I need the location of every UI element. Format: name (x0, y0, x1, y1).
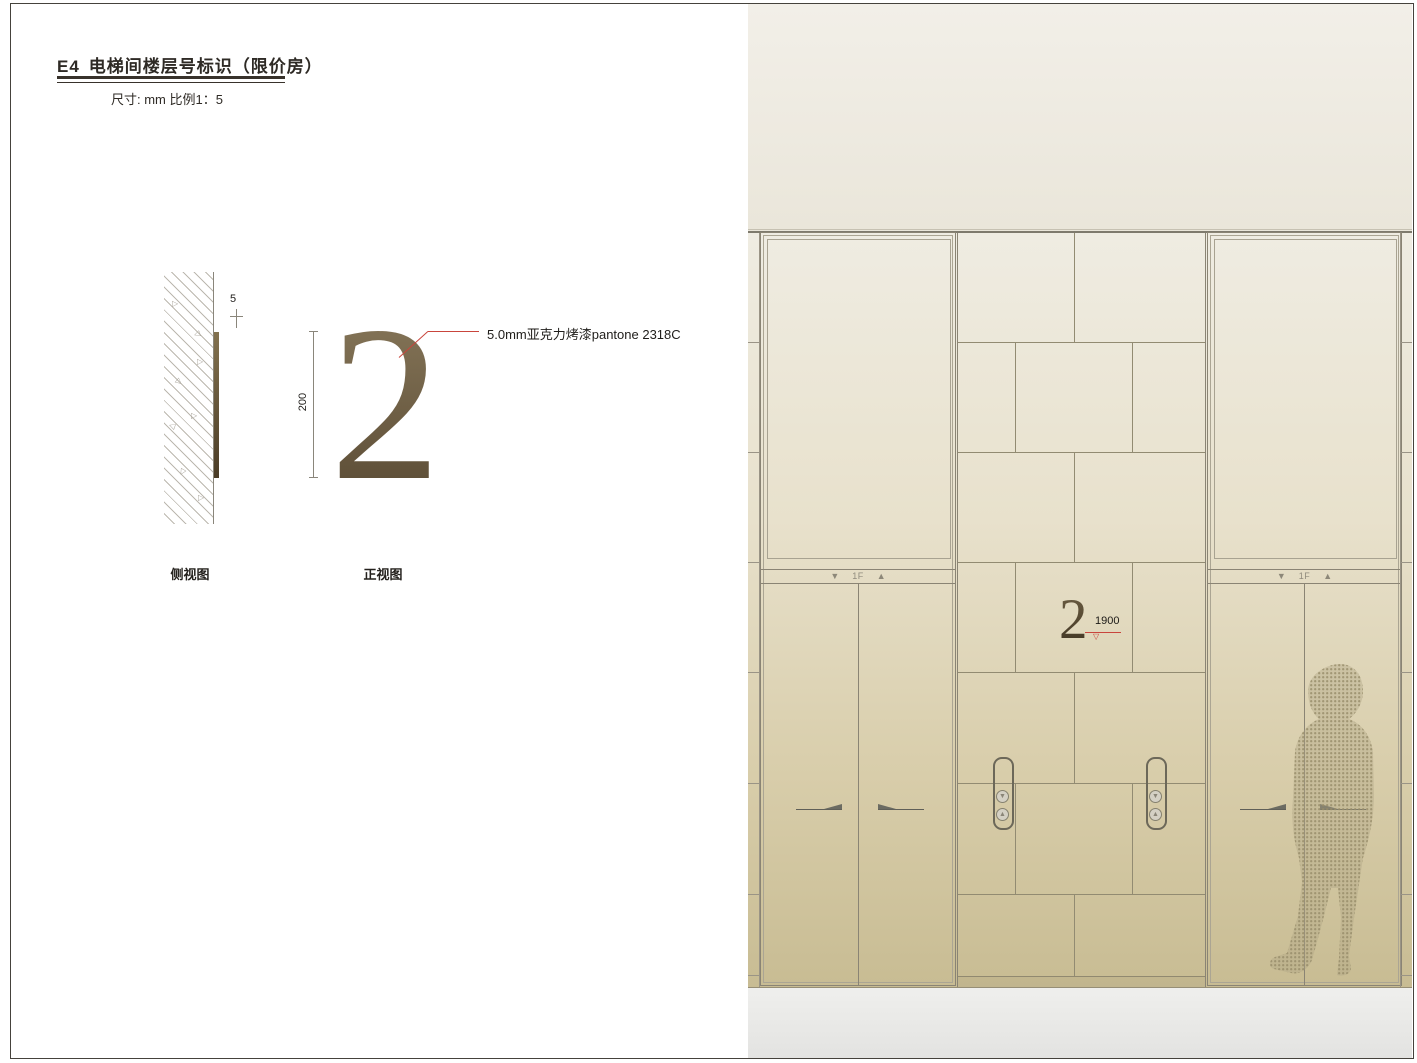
tile-joint (748, 894, 760, 895)
call-down-button: ▼ (996, 790, 1009, 803)
down-arrow-icon: ▼ (999, 793, 1006, 800)
mounting-height-dimension: 1900 (1095, 615, 1119, 627)
spec-sheet-page: E4电梯间楼层号标识（限价房） 尺寸: mm 比例1：5 ▷ ▷ ▷ ▷ ▷ ▷… (0, 0, 1417, 1063)
hatch-mark: ▷ (172, 300, 178, 308)
door-handle (1320, 809, 1366, 810)
tile-joint (748, 562, 760, 563)
tile-joint (1400, 452, 1412, 453)
dimension-cap (309, 477, 318, 478)
tile-joint (1400, 342, 1412, 343)
front-view-numeral-glyph: 2 (330, 331, 441, 481)
tile-joint (1205, 233, 1206, 987)
tile-joint (748, 672, 760, 673)
page-title: E4电梯间楼层号标识（限价房） (57, 52, 323, 77)
call-up-button: ▲ (1149, 808, 1162, 821)
title-underline (57, 76, 285, 83)
page-title-text: 电梯间楼层号标识（限价房） (89, 57, 323, 76)
level-mark-icon: ▽ (1093, 632, 1099, 641)
level-mark-line (1085, 632, 1121, 633)
call-up-button: ▲ (996, 808, 1009, 821)
front-view-label: 正视图 (348, 564, 418, 583)
tile-joint (958, 672, 1205, 673)
height-dimension: 200 (297, 385, 309, 419)
down-arrow-icon: ▼ (830, 572, 839, 581)
floor-indicator: 1F (1299, 572, 1311, 581)
hatch-mark: ▷ (198, 494, 204, 502)
material-annotation: 5.0mm亚克力烤漆pantone 2318C (487, 324, 681, 343)
tile-joint (1015, 783, 1016, 894)
tile-joint (958, 342, 1205, 343)
door-handle (796, 809, 842, 810)
elevator-left: ▼ 1F ▲ (760, 232, 956, 986)
tile-joint (1015, 562, 1016, 672)
dimension-cap (309, 331, 318, 332)
tile-joint (1400, 562, 1412, 563)
hatch-mark: ▷ (177, 467, 187, 476)
tile-joint (1074, 452, 1075, 562)
side-view-label: 侧视图 (155, 564, 225, 583)
floor-indicator: 1F (852, 572, 864, 581)
floor-edge-line (748, 987, 1412, 988)
tile-joint (1074, 672, 1075, 783)
hatch-mark: ▷ (191, 412, 197, 420)
door-handle-wedge-icon (1268, 804, 1286, 809)
door-handle-wedge-icon (824, 804, 842, 809)
tile-joint (1132, 783, 1133, 894)
tile-joint (957, 233, 958, 987)
wall-return-edge (1400, 233, 1401, 987)
ceiling-edge-line (748, 229, 1412, 230)
tile-joint (1132, 562, 1133, 672)
door-handle (878, 809, 924, 810)
height-dimension-line (313, 331, 314, 478)
door-gap (1304, 583, 1305, 985)
call-button-panel: ▼ ▲ (1146, 757, 1167, 830)
installed-sign-numeral-glyph: 2 (1059, 600, 1088, 640)
tile-joint (1015, 342, 1016, 452)
installed-sign-numeral: 2 (1058, 600, 1090, 640)
page-subtitle: 尺寸: mm 比例1：5 (111, 89, 223, 108)
tile-joint (958, 562, 1205, 563)
hatch-mark: ▷ (168, 421, 177, 431)
door-gap (858, 583, 859, 985)
up-arrow-icon: ▲ (877, 572, 886, 581)
up-arrow-icon: ▲ (1323, 572, 1332, 581)
front-view-numeral: 2 (328, 331, 448, 481)
floor (748, 987, 1412, 1058)
base-strip (958, 976, 1205, 987)
side-view-wall-hatch: ▷ ▷ ▷ ▷ ▷ ▷ ▷ ▷ (164, 272, 213, 524)
tile-joint (748, 452, 760, 453)
down-arrow-icon: ▼ (1277, 572, 1286, 581)
hall-lantern-band: ▼ 1F ▲ (761, 569, 955, 584)
elevator-lobby-rendering: ▼ 1F ▲ (748, 4, 1412, 1058)
thickness-dimension: 5 (230, 293, 236, 305)
tile-joint (958, 452, 1205, 453)
tile-joint (958, 894, 1205, 895)
tile-joint (1400, 894, 1412, 895)
call-down-button: ▼ (1149, 790, 1162, 803)
dimension-tick (236, 309, 237, 328)
ceiling (748, 4, 1412, 231)
tile-joint (1132, 342, 1133, 452)
hall-lantern-band: ▼ 1F ▲ (1208, 569, 1401, 584)
annotation-leader (428, 331, 479, 332)
tile-joint (1074, 233, 1075, 342)
side-view-sign-profile (214, 332, 219, 478)
up-arrow-icon: ▲ (1152, 811, 1159, 818)
tile-joint (1400, 975, 1412, 976)
door-handle-wedge-icon (878, 804, 896, 809)
down-arrow-icon: ▼ (1152, 793, 1159, 800)
tile-joint (1400, 672, 1412, 673)
page-title-code: E4 (57, 57, 80, 76)
tile-joint (1400, 783, 1412, 784)
hatch-mark: ▷ (174, 377, 184, 387)
tile-joint (1074, 894, 1075, 976)
hatch-mark: ▷ (197, 358, 203, 366)
tile-joint (748, 342, 760, 343)
tile-joint (748, 783, 760, 784)
call-button-panel: ▼ ▲ (993, 757, 1014, 830)
hatch-mark: ▷ (193, 329, 202, 339)
transom-panel (767, 239, 951, 559)
door-handle-wedge-icon (1320, 804, 1338, 809)
dimension-tick (230, 316, 243, 317)
transom-panel (1214, 239, 1397, 559)
up-arrow-icon: ▲ (999, 811, 1006, 818)
door-handle (1240, 809, 1286, 810)
tile-joint (748, 975, 760, 976)
elevator-right: ▼ 1F ▲ (1207, 232, 1402, 986)
